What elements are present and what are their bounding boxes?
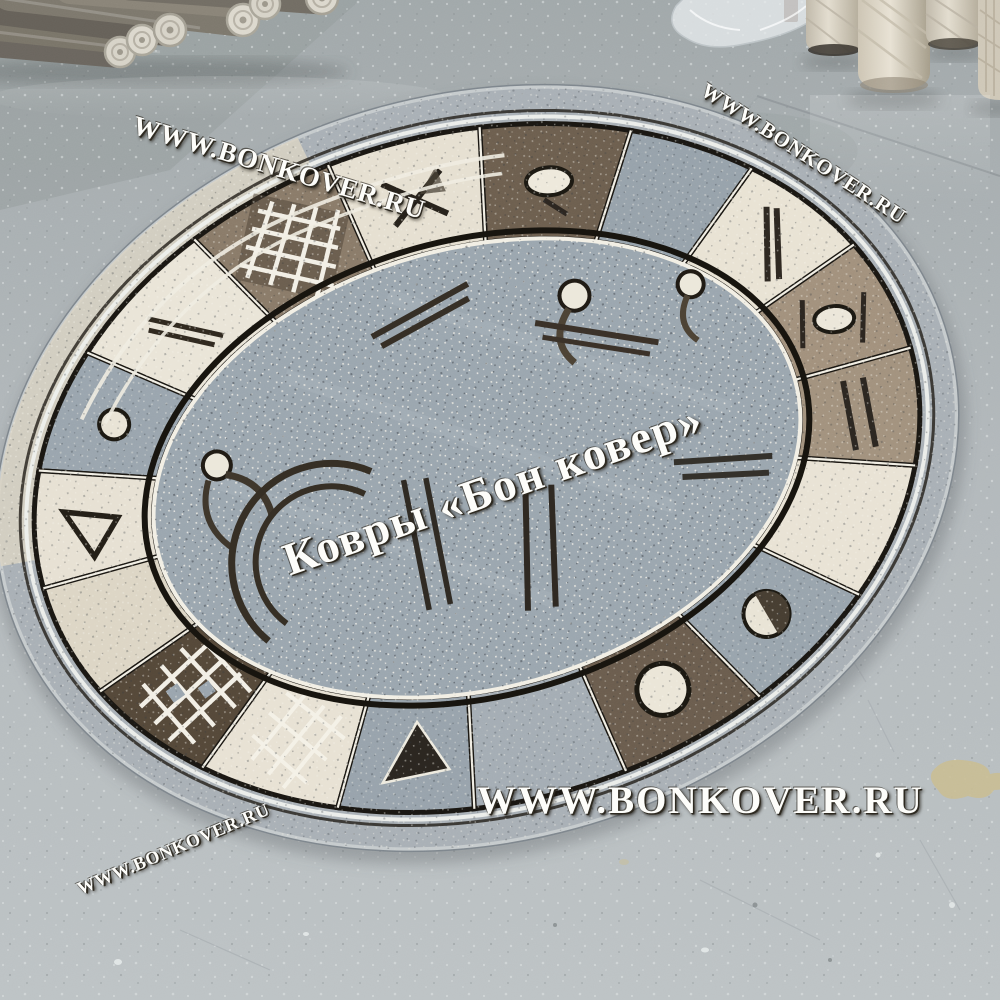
watermark-bottom: WWW.BONKOVER.RU	[477, 778, 924, 823]
photo-of-oval-rug-in-warehouse: WWW.BONKOVER.RU WWW.BONKOVER.RU Ковры «Б…	[0, 0, 1000, 1000]
